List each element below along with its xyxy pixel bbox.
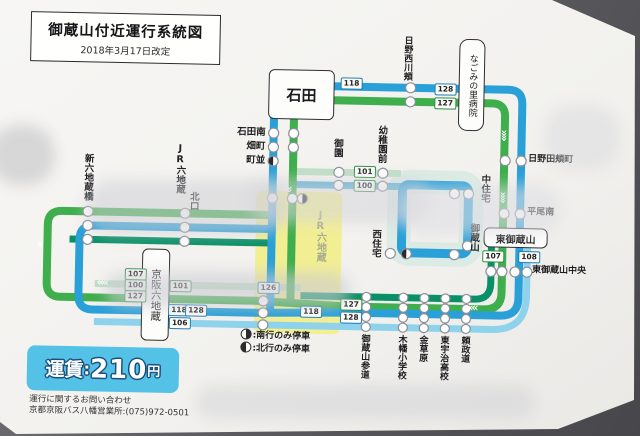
- route-badge-128: 128: [434, 83, 456, 95]
- jr-rokujizo-highlight-label: JR六地蔵: [314, 210, 325, 262]
- map-title: 御蔵山付近運行系統図: [48, 18, 203, 42]
- nagomi-hospital-label: なごみの里病院: [467, 53, 477, 116]
- nishi-jutaku-label: 西住宅: [370, 229, 380, 258]
- stop-legend: :南行のみ停車 :北行のみ停車: [240, 327, 310, 354]
- route-badge-118: 118: [341, 77, 363, 89]
- jr-rokujizo-kitaguchi-label: 北口: [188, 191, 198, 210]
- yochien-mae-label: 幼稚園前: [376, 125, 386, 163]
- fare-box: 運賃 : 210 円: [26, 345, 179, 393]
- higashi-uji-highschool-label: 東宇治高校: [438, 335, 448, 380]
- naka-jutaku-label: 中住宅: [479, 174, 489, 203]
- ishida-station-box: 石田: [268, 69, 335, 120]
- hirao-minami-label: 平尾南: [527, 208, 554, 218]
- legend-northbound-row: :北行のみ停車: [240, 340, 310, 354]
- chevron-up-icon: »: [35, 243, 45, 248]
- fare-label: 運賃: [45, 355, 84, 383]
- route-map-content: »» »» »» » «« «« » 石田 なごみの里病院 東御蔵山 京阪六地蔵…: [0, 0, 640, 436]
- route-badge-127: 127: [340, 298, 362, 310]
- chevron-left-icon: ««: [97, 278, 107, 288]
- route-badge-128: 128: [185, 304, 207, 316]
- machinami-label: 町並: [219, 155, 265, 166]
- route-badge-127: 127: [434, 97, 456, 109]
- chevron-left-icon: ««: [466, 303, 476, 313]
- route-badge-106: 106: [169, 317, 191, 329]
- route-badge-128: 128: [340, 311, 362, 323]
- chevron-down-icon: »»: [499, 129, 509, 139]
- hino-tazuramachi-label: 日野田頬町: [528, 155, 573, 166]
- photo-frame: »» »» »» » «« «« » 石田 なごみの里病院 東御蔵山 京阪六地蔵…: [0, 0, 640, 436]
- hatamachi-label: 畑町: [219, 141, 265, 152]
- route-badge-101: 101: [169, 280, 191, 292]
- route-badge-118: 118: [300, 306, 322, 318]
- route-badge-108: 108: [518, 251, 540, 263]
- higashi-mikurayama-chuo-label: 東御蔵山中央: [532, 266, 586, 277]
- route-badge-101: 101: [354, 166, 376, 178]
- poster-paper: »» »» »» » «« «« » 石田 なごみの里病院 東御蔵山 京阪六地蔵…: [0, 0, 640, 436]
- keihan-rokujizo-label: 京阪六地蔵: [150, 268, 162, 321]
- map-revision-date: 2018年3月17日改定: [80, 42, 170, 58]
- ishida-minami-label: 石田南: [220, 127, 266, 138]
- kanekusahara-label: 金草原: [417, 335, 427, 362]
- map-title-box: 御蔵山付近運行系統図 2018年3月17日改定: [30, 11, 221, 65]
- legend-southbound-label: :南行のみ停車: [253, 328, 311, 342]
- fare-unit: 円: [147, 361, 160, 380]
- misono-label: 御園: [332, 138, 342, 157]
- shin-rokujizobashi-label: 新六地蔵橋: [82, 153, 92, 201]
- route-badge-127: 127: [124, 290, 146, 302]
- hino-nishikawazura-label: 日野西川頬: [402, 36, 412, 81]
- southbound-only-stop-icon: [241, 328, 252, 339]
- kohata-elementary-label: 木幡小学校: [396, 335, 406, 380]
- ishida-station-label: 石田: [286, 84, 316, 106]
- line-teal-upper: [70, 239, 276, 243]
- jr-rokujizo-label: JR六地蔵: [174, 143, 185, 194]
- mikurayama-label: 御蔵山: [468, 223, 478, 252]
- contact-info: 運行に関するお問い合わせ 京都京阪バス八幡営業所:(075)972-0501: [29, 394, 190, 419]
- chevron-down-icon: »: [284, 186, 294, 191]
- route-badge-100: 100: [354, 180, 376, 192]
- route-badge-107: 107: [482, 250, 504, 262]
- higashi-mikurayama-label: 東御蔵山: [495, 230, 535, 246]
- chevron-down-icon: »»: [497, 191, 507, 201]
- legend-northbound-label: :北行のみ停車: [252, 341, 310, 355]
- route-badge-126: 126: [257, 282, 279, 294]
- yorimasamichi-label: 頼政道: [459, 336, 469, 363]
- mikurayama-sando-label: 御蔵山参道: [359, 334, 369, 379]
- fare-amount: 210: [90, 354, 148, 385]
- loop-halo: [398, 182, 471, 255]
- higashi-mikurayama-box: 東御蔵山: [483, 227, 547, 248]
- northbound-only-stop-icon: [240, 341, 251, 352]
- nagomi-hospital-box: なごみの里病院: [458, 39, 486, 132]
